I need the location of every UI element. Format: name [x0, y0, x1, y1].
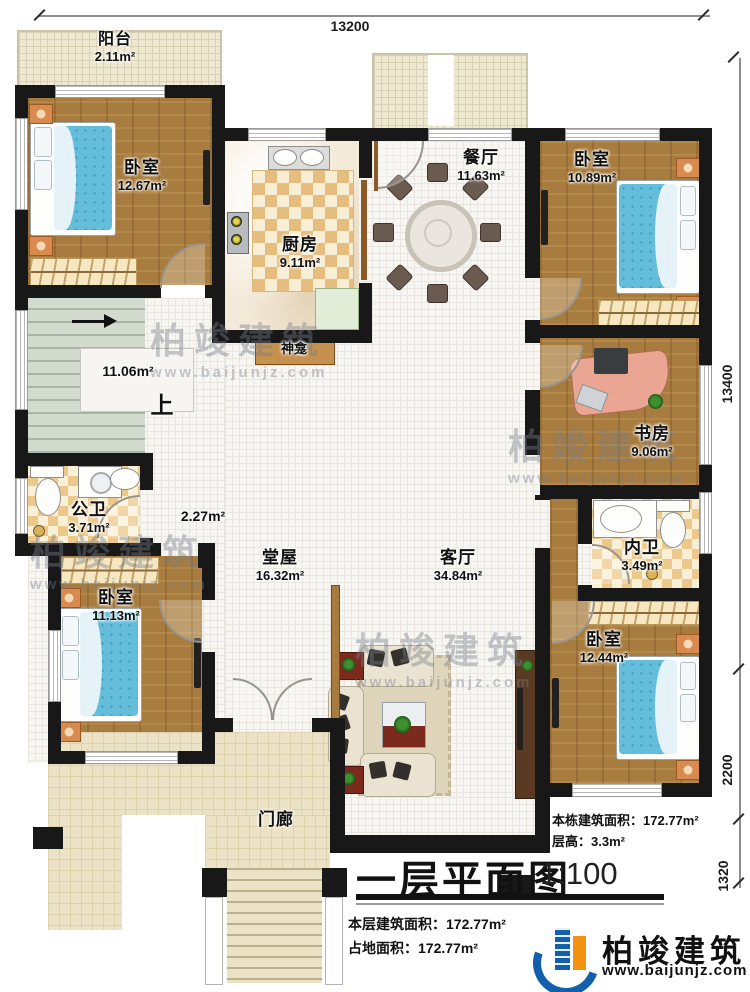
dimension-right-lower: 2200 — [719, 742, 735, 798]
room-name: 门廊 — [258, 810, 294, 830]
wall — [15, 543, 161, 556]
terrace-walkway — [428, 55, 454, 126]
window — [15, 118, 28, 210]
tv — [517, 688, 523, 750]
stairs-arrow-line — [72, 320, 106, 323]
wall — [202, 555, 215, 600]
dimension-line-top — [38, 15, 710, 17]
wall — [15, 285, 161, 298]
room-label-study: 书房 9.06m² — [631, 424, 672, 460]
window — [565, 128, 660, 141]
room-area: 16.32m² — [256, 568, 304, 584]
wall — [525, 390, 540, 455]
room-name: 神龛 — [281, 341, 307, 357]
wall — [525, 128, 540, 278]
nightstand — [676, 634, 700, 654]
sofa-pillow — [369, 761, 388, 780]
plan-scale: 1:100 — [540, 856, 618, 892]
toilet-tank — [656, 500, 690, 512]
wall — [540, 485, 712, 499]
room-label-kitchen: 厨房 9.11m² — [280, 235, 320, 271]
dimension-right-upper: 13400 — [719, 354, 735, 414]
stove-burner — [231, 216, 242, 227]
floor-height-label: 层高： — [552, 834, 591, 849]
room-area: 11.13m² — [92, 608, 140, 624]
brand-url: www.baijunjz.com — [602, 962, 747, 979]
bed-pillow — [62, 650, 79, 680]
building-area-label: 本栋建筑面积： — [552, 813, 643, 828]
brand-logo — [533, 922, 597, 988]
window — [85, 751, 178, 764]
footprint-value: 172.77m² — [418, 940, 478, 956]
dining-chair — [427, 163, 448, 182]
floor-area-value: 172.77m² — [446, 916, 506, 932]
logo-building-icon — [573, 936, 586, 970]
bed-pillow — [680, 186, 696, 216]
nightstand — [29, 236, 53, 256]
dimension-tick — [727, 51, 739, 63]
wall — [215, 718, 233, 732]
bed-sheet — [80, 612, 102, 716]
dimension-line-right — [739, 58, 741, 888]
desk-plant — [648, 394, 663, 409]
room-label-bedroom-bl: 卧室 11.13m² — [92, 588, 140, 624]
room-name: 餐厅 — [457, 148, 505, 168]
room-area: 9.06m² — [631, 444, 672, 460]
corridor-area-label: 2.27m² — [181, 508, 225, 525]
porch-floor — [48, 732, 330, 815]
footprint-label: 占地面积： — [348, 940, 418, 956]
porch-steps — [227, 868, 322, 983]
room-name: 厨房 — [280, 235, 320, 255]
dining-table — [405, 200, 477, 272]
window — [55, 85, 165, 98]
room-name: 公卫 — [68, 500, 109, 520]
porch-pillar — [322, 868, 347, 897]
computer-monitor — [594, 348, 628, 374]
floor-area-label: 本层建筑面积： — [348, 916, 446, 932]
room-area: 3.71m² — [68, 520, 109, 536]
wall — [212, 85, 225, 343]
stairs-arrow-head — [104, 314, 117, 328]
title-underline-thin — [356, 903, 664, 905]
room-label-bedroom-br: 卧室 12.44m² — [580, 630, 628, 666]
wall — [535, 495, 550, 500]
kitchen-sink-bowl — [300, 149, 324, 166]
room-label-bedroom-tr: 卧室 10.89m² — [568, 150, 616, 186]
room-label-dining: 餐厅 11.63m² — [457, 148, 505, 184]
wall — [535, 548, 550, 853]
wall — [525, 338, 540, 343]
room-name: 内卫 — [621, 538, 662, 558]
room-area: 9.11m² — [280, 255, 320, 271]
door-leaf — [374, 141, 378, 191]
room-area: 2.11m² — [95, 49, 135, 65]
wall — [359, 128, 372, 178]
window — [48, 630, 61, 702]
wall — [525, 325, 712, 338]
bed-sheet — [655, 184, 677, 288]
window — [248, 128, 326, 141]
title-underline — [356, 894, 664, 900]
nightstand — [676, 760, 700, 780]
dining-chair — [427, 284, 448, 303]
wall — [202, 652, 215, 763]
room-name: 阳台 — [95, 30, 135, 49]
room-label-balcony: 阳台 2.11m² — [95, 30, 135, 65]
bed-pillow — [680, 662, 696, 690]
toilet-tank — [30, 466, 64, 478]
floor-plan-canvas: 柏竣建筑 www.baijunjz.com 柏竣建筑 www.baijunjz.… — [0, 0, 750, 992]
room-label-living: 客厅 34.84m² — [434, 548, 482, 584]
bed-pillow — [34, 127, 52, 157]
wall — [15, 453, 153, 466]
logo-building-icon — [555, 928, 570, 970]
porch-step-rail — [325, 897, 343, 985]
room-label-public-bath: 公卫 3.71m² — [68, 500, 109, 536]
porch-step-rail — [205, 897, 223, 985]
room-label-porch: 门廊 — [258, 810, 294, 830]
room-label-main-hall: 堂屋 16.32m² — [256, 548, 304, 584]
toilet — [35, 478, 61, 516]
porch-pillar — [202, 868, 227, 897]
window — [572, 783, 662, 797]
wall — [140, 538, 153, 543]
wall — [578, 588, 712, 601]
kitchen-sink-bowl — [273, 149, 297, 166]
room-area: 2.27m² — [181, 508, 225, 525]
floor-drain — [33, 525, 45, 537]
room-name: 卧室 — [568, 150, 616, 170]
room-area: 34.84m² — [434, 568, 482, 584]
footprint-line: 占地面积：172.77m² — [348, 938, 478, 958]
wardrobe — [61, 557, 159, 584]
room-area: 12.67m² — [118, 178, 166, 194]
room-area: 3.49m² — [621, 558, 662, 574]
up-text: 上 — [151, 392, 174, 420]
room-label-inner-bath: 内卫 3.49m² — [621, 538, 662, 574]
window — [699, 492, 712, 554]
floor-hall-tile — [330, 797, 535, 835]
cabinet-plant — [522, 660, 533, 671]
nightstand — [676, 158, 700, 178]
wall — [578, 499, 592, 544]
bed-sheet — [54, 126, 76, 230]
stove-burner — [231, 234, 242, 245]
tv — [541, 190, 548, 245]
room-area: 11.06m² — [102, 363, 153, 380]
room-area: 12.44m² — [580, 650, 628, 666]
stairs-area-label: 11.06m² — [102, 363, 153, 380]
dining-chair — [373, 223, 394, 242]
room-name: 书房 — [631, 424, 672, 444]
door-leaf-kitchen — [361, 180, 367, 280]
fridge — [315, 288, 359, 330]
toilet — [660, 512, 686, 548]
floor-kitchen-tiles — [252, 170, 354, 292]
room-name: 客厅 — [434, 548, 482, 568]
sofa-pillow — [367, 649, 386, 668]
wardrobe — [30, 258, 137, 286]
room-area: 11.63m² — [457, 168, 505, 184]
window — [428, 128, 512, 141]
wardrobe — [588, 601, 700, 625]
building-area-line: 本栋建筑面积：172.77m² — [552, 810, 699, 829]
room-name: 堂屋 — [256, 548, 304, 568]
tv — [194, 638, 201, 688]
room-label-bedroom-tl: 卧室 12.67m² — [118, 158, 166, 194]
room-name: 卧室 — [580, 630, 628, 650]
floor-corridor-east — [550, 495, 578, 601]
dimension-right-bottom: 1320 — [715, 848, 731, 904]
porch-pillar — [33, 827, 63, 849]
washing-machine-door — [90, 472, 112, 494]
bed-pillow — [34, 160, 52, 190]
side-table-plant — [342, 658, 355, 671]
tv — [552, 678, 559, 728]
bed-pillow — [680, 694, 696, 722]
building-area-value: 172.77m² — [643, 813, 699, 828]
nightstand — [29, 104, 53, 124]
bath-sink — [600, 505, 642, 533]
wardrobe — [598, 300, 700, 326]
bath-sink — [110, 468, 140, 490]
window — [15, 310, 28, 410]
stairs-landing — [80, 348, 194, 412]
window — [15, 478, 28, 534]
shrine-label: 神龛 — [281, 341, 307, 357]
dimension-top: 13200 — [320, 18, 380, 34]
window — [699, 365, 712, 465]
wall — [330, 718, 345, 853]
bed-pillow — [62, 616, 79, 646]
room-name: 卧室 — [92, 588, 140, 608]
stairs-up-label: 上 — [151, 392, 174, 420]
dining-chair — [480, 223, 501, 242]
floor-area-line: 本层建筑面积：172.77m² — [348, 914, 506, 934]
tv — [203, 150, 210, 205]
room-name: 卧室 — [118, 158, 166, 178]
bed-pillow — [680, 220, 696, 250]
hall-divider — [331, 585, 340, 720]
bed-sheet — [655, 660, 677, 754]
floor-height-value: 3.3m² — [591, 834, 625, 849]
wall — [140, 466, 153, 490]
coffee-table-plant — [394, 716, 411, 733]
room-area: 10.89m² — [568, 170, 616, 186]
